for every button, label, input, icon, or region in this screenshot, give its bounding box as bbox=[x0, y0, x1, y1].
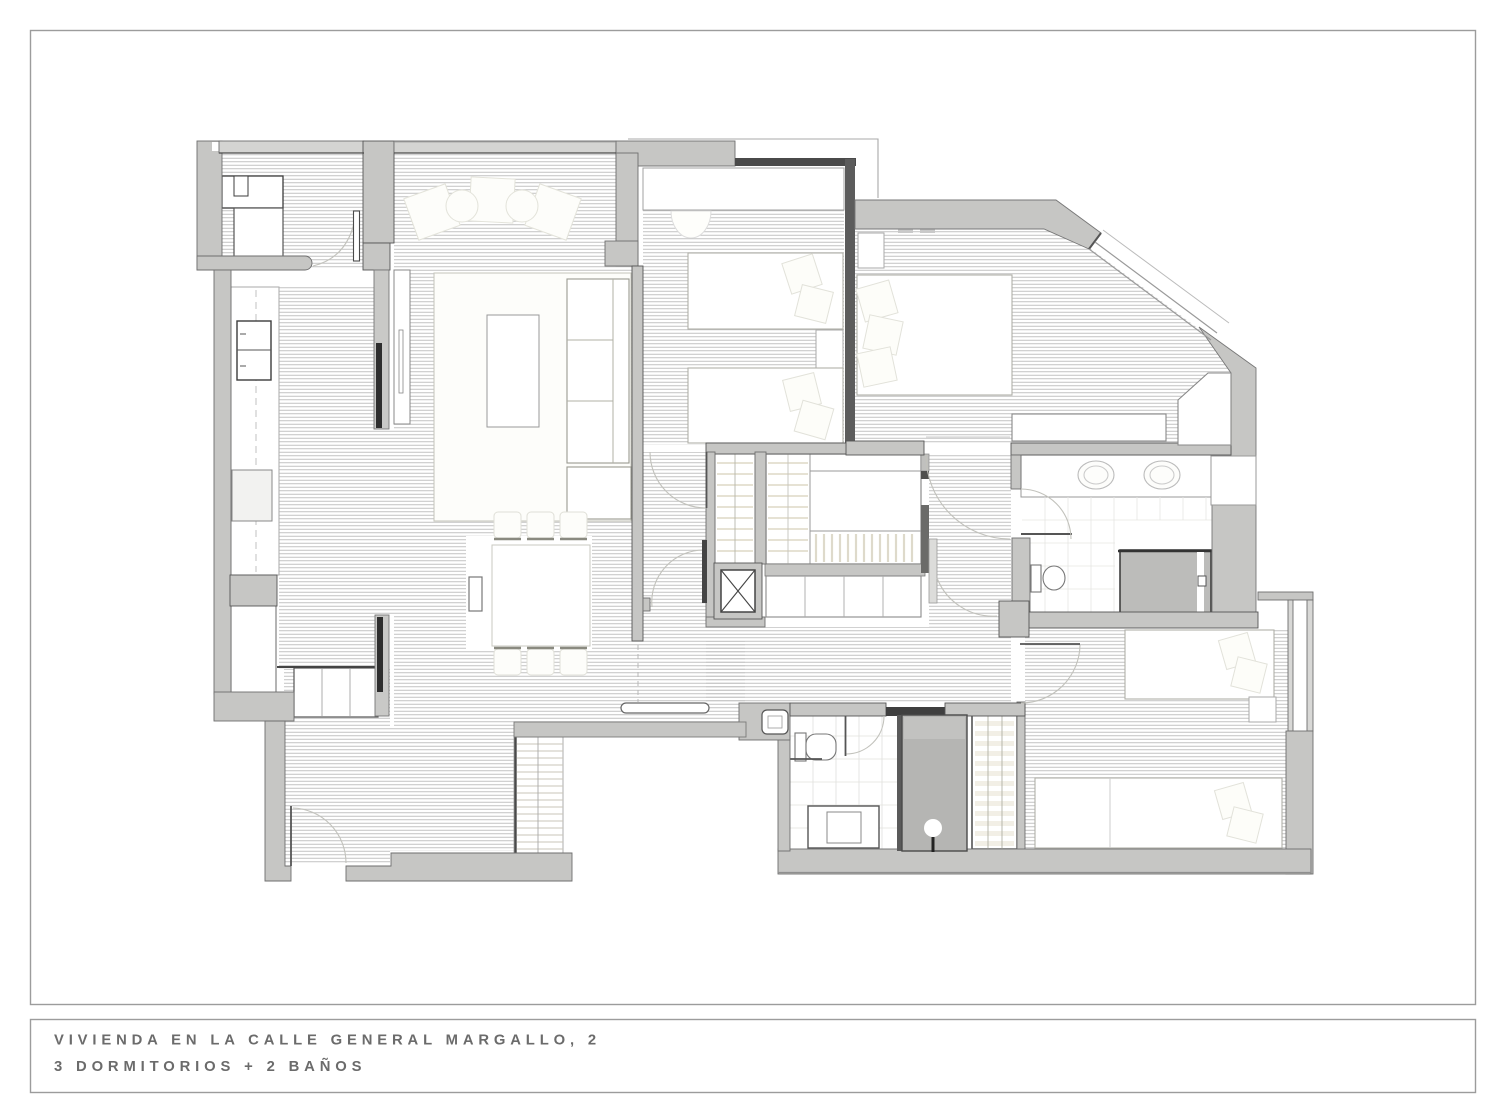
svg-text:3 DORMITORIOS + 2 BAÑOS: 3 DORMITORIOS + 2 BAÑOS bbox=[54, 1057, 366, 1075]
svg-text:VIVIENDA EN LA CALLE GENERAL M: VIVIENDA EN LA CALLE GENERAL MARGALLO, 2 bbox=[54, 1033, 601, 1049]
